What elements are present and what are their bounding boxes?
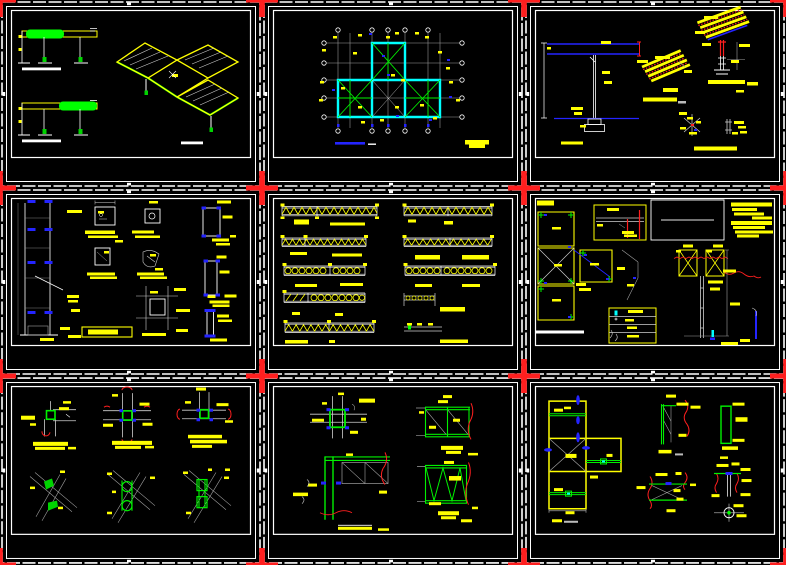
sheet-7	[0, 376, 262, 565]
elevation-view-top	[18, 29, 97, 71]
legend-box	[651, 200, 724, 240]
splice-detail-top	[659, 395, 701, 456]
truss-row-1	[281, 204, 495, 226]
sheet-4	[0, 188, 262, 376]
green-corner-marks	[538, 212, 612, 320]
caption-text-blobs	[33, 435, 227, 450]
truss-row-5	[284, 320, 469, 344]
isometric-deck-view	[117, 43, 238, 144]
title-text-blob	[465, 140, 489, 145]
roof-panel-detail-top-right	[695, 5, 758, 93]
view-title-blob	[22, 140, 61, 143]
cad-sheet-grid	[0, 0, 786, 565]
splice-plate-right	[721, 403, 748, 450]
sheet-9	[524, 376, 786, 565]
column-elevation	[18, 200, 82, 341]
column-assembly	[674, 245, 761, 346]
title-text-blob	[694, 147, 737, 151]
sheet-3	[524, 0, 786, 188]
elevation-view-bottom	[18, 101, 97, 143]
sheet-1	[0, 0, 262, 188]
t-column-section	[541, 41, 641, 145]
beam-plan-detail	[310, 393, 375, 439]
legend-blue-bar	[335, 142, 365, 145]
view-title-blob	[22, 68, 61, 71]
joint-isometric-details	[30, 468, 231, 522]
joint-plan-details	[21, 387, 233, 450]
sheet-6	[524, 188, 786, 376]
schedule-table	[609, 308, 656, 343]
splice-detail-mid	[637, 472, 697, 512]
truss-frame-top	[416, 395, 478, 455]
truss-row-3	[283, 263, 498, 287]
mid-marks	[617, 250, 638, 300]
column-beam-detail	[293, 452, 390, 530]
title-text-blob	[536, 331, 584, 334]
view-title-blob	[181, 142, 203, 145]
sheet-2	[262, 0, 524, 188]
edge-details-right	[202, 201, 237, 342]
truss-row-2	[281, 235, 495, 260]
bracing-plan	[536, 201, 612, 334]
base-connection-details	[679, 112, 747, 151]
sheet-5	[262, 188, 524, 376]
splice-detail-right	[712, 456, 752, 521]
notes-text-block	[731, 203, 773, 238]
plan-outline-detail	[544, 395, 621, 523]
title-text-blob	[440, 340, 468, 344]
plate-details	[82, 201, 190, 338]
sheet-8	[262, 376, 524, 565]
truss-row-4	[283, 290, 466, 316]
connection-detail-box	[594, 205, 646, 240]
title-text-blob	[338, 527, 372, 530]
framing-plan	[319, 28, 489, 148]
truss-frame-bottom	[417, 461, 478, 522]
roof-panel-detail-mid	[637, 48, 692, 103]
